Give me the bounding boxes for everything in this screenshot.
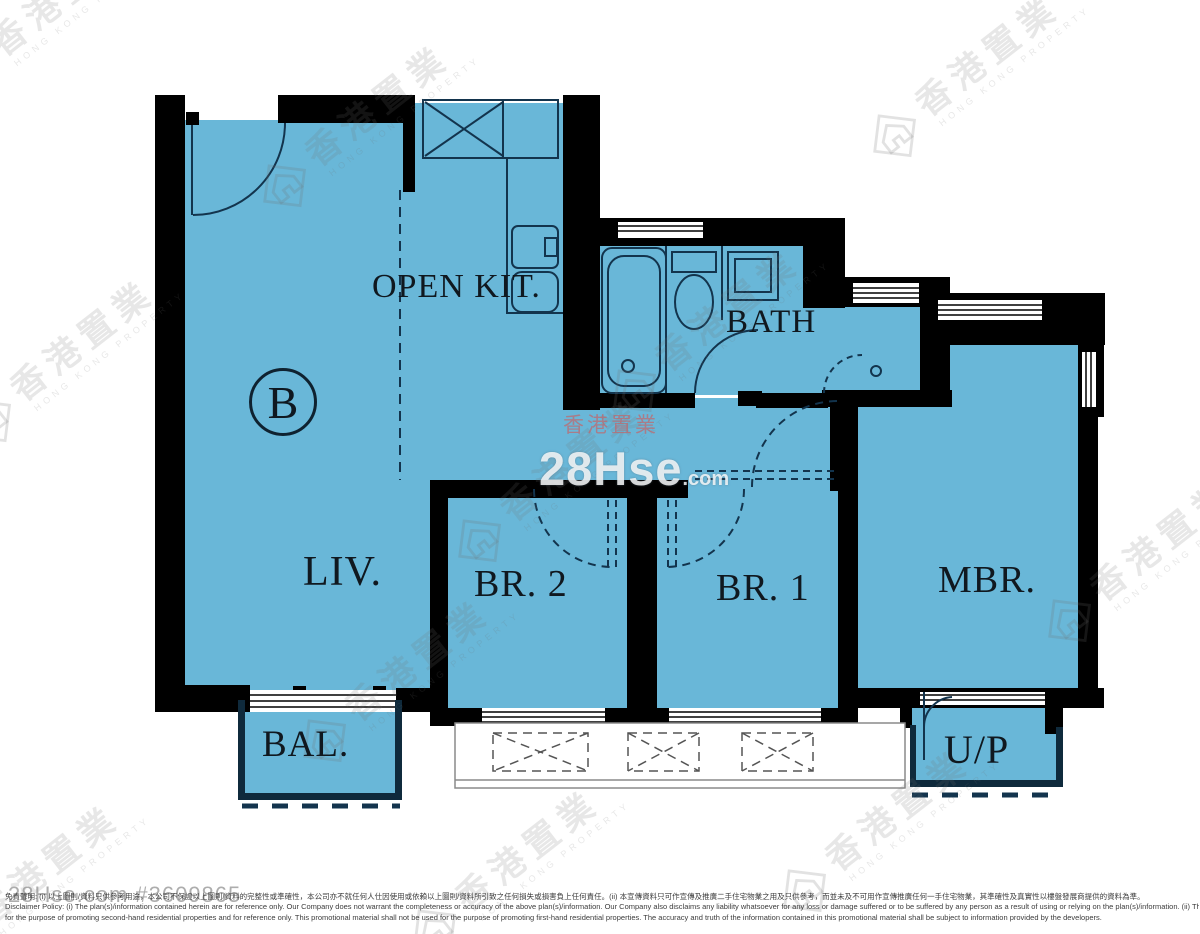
disclaimer-line-en1: Disclaimer Policy: (i) The plan(s)/infor…	[5, 902, 1199, 913]
unit-badge: B	[249, 368, 317, 436]
floorplan-page: OPEN KIT. BATH LIV. BR. 2 BR. 1 MBR. BAL…	[0, 0, 1200, 934]
disclaimer-line-cn: 免責聲明: (i) 以上圖則/資料只供參考用途，本公司不保證以上圖則/資料的完整…	[5, 891, 1199, 902]
label-balcony: BAL.	[262, 723, 349, 766]
site-watermark-name: 28Hse	[539, 442, 683, 495]
ac-platform	[455, 723, 905, 788]
site-watermark: 28Hse.com	[539, 441, 729, 496]
label-bath: BATH	[726, 304, 816, 341]
disclaimer-line-en2: for the purpose of promoting second-hand…	[5, 913, 1199, 924]
label-utility-platform: U/P	[944, 726, 1009, 773]
label-bedroom-2: BR. 2	[474, 562, 568, 606]
disclaimer-footer: 免責聲明: (i) 以上圖則/資料只供參考用途，本公司不保證以上圖則/資料的完整…	[5, 891, 1199, 923]
center-brand-watermark: 香港置業	[563, 409, 659, 439]
room-mbr	[855, 398, 1080, 690]
label-bedroom-1: BR. 1	[716, 566, 810, 610]
label-master-bedroom: MBR.	[938, 558, 1036, 602]
label-living: LIV.	[303, 548, 382, 596]
room-shower	[826, 303, 924, 395]
site-watermark-suffix: .com	[683, 468, 730, 490]
label-open-kitchen: OPEN KIT.	[372, 268, 541, 306]
room-mbr-upper	[945, 340, 1080, 402]
